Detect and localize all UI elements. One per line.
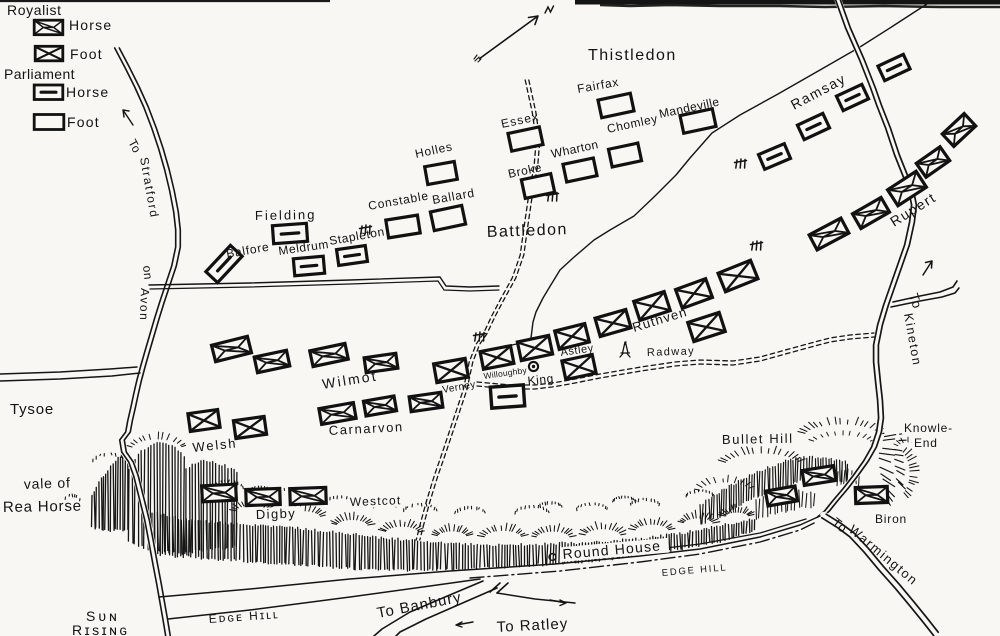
svg-text:vale of: vale of [24, 474, 71, 492]
svg-text:Thistledon: Thistledon [588, 47, 677, 64]
svg-text:Westcot: Westcot [350, 493, 402, 509]
svg-text:Fielding: Fielding [255, 207, 317, 223]
svg-text:Horse: Horse [69, 17, 112, 33]
svg-text:King: King [527, 371, 555, 388]
svg-text:Parliament: Parliament [4, 66, 75, 82]
svg-text:Foot: Foot [70, 46, 103, 62]
svg-text:Tysoe: Tysoe [10, 401, 54, 418]
svg-text:Radway: Radway [647, 345, 696, 359]
svg-text:Royalist: Royalist [7, 2, 62, 18]
svg-text:Biron: Biron [875, 512, 907, 526]
svg-text:Foot: Foot [67, 114, 100, 130]
svg-text:Knowle-: Knowle- [904, 421, 953, 435]
svg-text:Avon: Avon [137, 288, 152, 322]
svg-text:Bullet Hill: Bullet Hill [722, 431, 794, 447]
svg-text:End: End [914, 436, 938, 450]
svg-text:Battledon: Battledon [487, 221, 569, 241]
svg-text:Horse: Horse [66, 84, 109, 100]
svg-text:Rɪsɪɴɢ: Rɪsɪɴɢ [72, 622, 130, 636]
svg-text:Rea Horse: Rea Horse [3, 498, 82, 516]
svg-text:on: on [140, 265, 155, 281]
svg-text:Digby: Digby [256, 506, 297, 522]
